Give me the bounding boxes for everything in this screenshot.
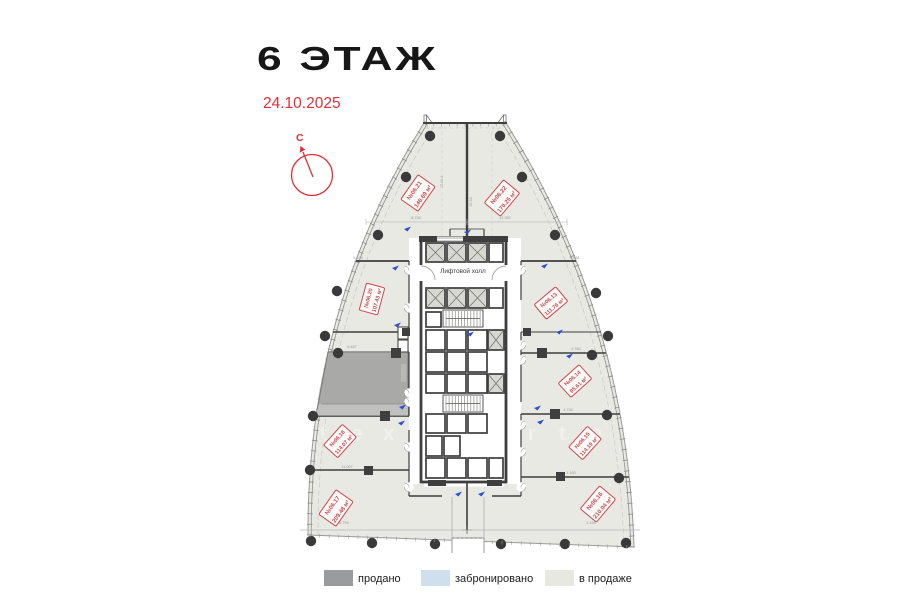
svg-text:продано: продано [358,573,401,585]
svg-text:t: t [559,423,566,445]
svg-text:r: r [528,423,536,445]
svg-text:2.166: 2.166 [586,521,596,525]
svg-text:забронировано: забронировано [455,573,533,585]
svg-text:12.387: 12.387 [499,216,511,220]
svg-text:15.40: 15.40 [469,197,473,207]
svg-text:С: С [296,132,304,144]
svg-text:8.730: 8.730 [411,216,421,220]
svg-text:11.007: 11.007 [341,465,352,469]
svg-text:6.794: 6.794 [339,521,349,525]
svg-text:6.487: 6.487 [347,345,357,349]
svg-text:Лифтовой холл: Лифтовой холл [440,267,486,275]
svg-text:в продаже: в продаже [579,573,632,585]
svg-text:6 ЭТАЖ: 6 ЭТАЖ [257,40,438,77]
svg-text:5.194: 5.194 [353,256,363,260]
svg-text:5.981: 5.981 [570,256,580,260]
svg-text:9.780: 9.780 [571,347,581,351]
svg-text:24.10.2025: 24.10.2025 [263,95,341,112]
svg-text:x: x [383,423,394,445]
svg-text:4.730: 4.730 [563,408,573,412]
svg-text:1.160: 1.160 [566,471,576,475]
svg-text:15.014: 15.014 [440,176,444,188]
